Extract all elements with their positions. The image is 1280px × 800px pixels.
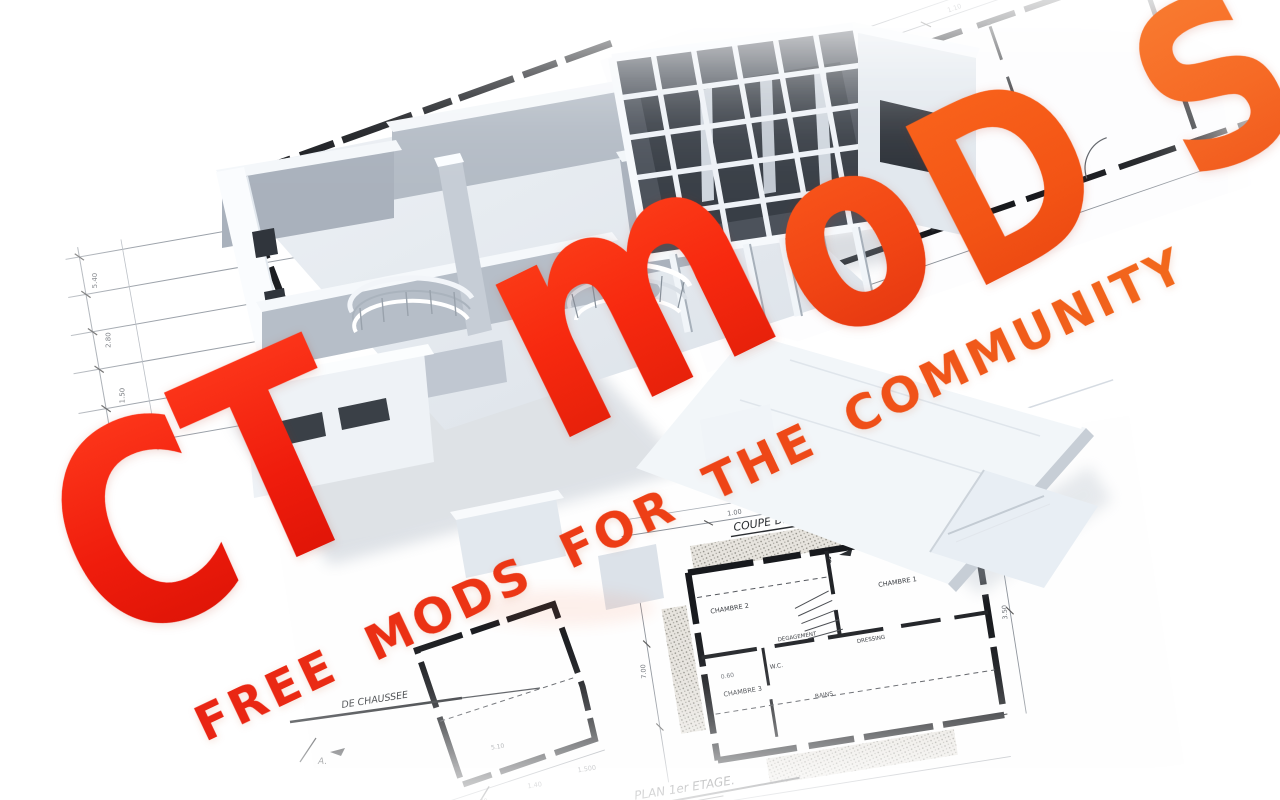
dimension-label: 5.40 [91,273,99,289]
banner: 5.40 2.80 1.50 3.60 2.50 1.10 3.50 [0,0,1280,800]
section-marker: A. [317,757,327,767]
dimension-label: 2.80 [105,332,113,348]
dimension-label: 7.00 [639,664,648,679]
dimension-label: 3.50 [1000,605,1009,620]
